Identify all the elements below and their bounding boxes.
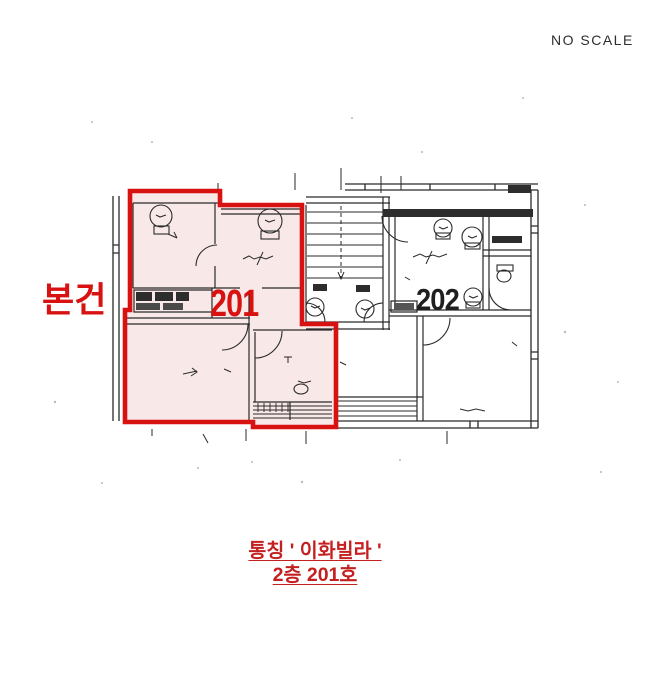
building-caption: 통칭 ' 이화빌라 ' 2층 201호	[248, 539, 381, 587]
unit-201-label: 201	[210, 283, 258, 326]
caption-line-2: 2층 201호	[248, 563, 381, 587]
staircase-treads	[307, 212, 383, 278]
unit-202-label: 202	[416, 282, 459, 318]
floor-plan-drawing	[0, 0, 662, 700]
subject-marker-label: 본건	[42, 272, 106, 323]
caption-line-1: 통칭 ' 이화빌라 '	[248, 539, 381, 563]
no-scale-label: NO SCALE	[551, 32, 634, 48]
appraisal-floor-plan-page: NO SCALE 본건 201 202 통칭 ' 이화빌라 ' 2층 201호	[0, 0, 662, 700]
